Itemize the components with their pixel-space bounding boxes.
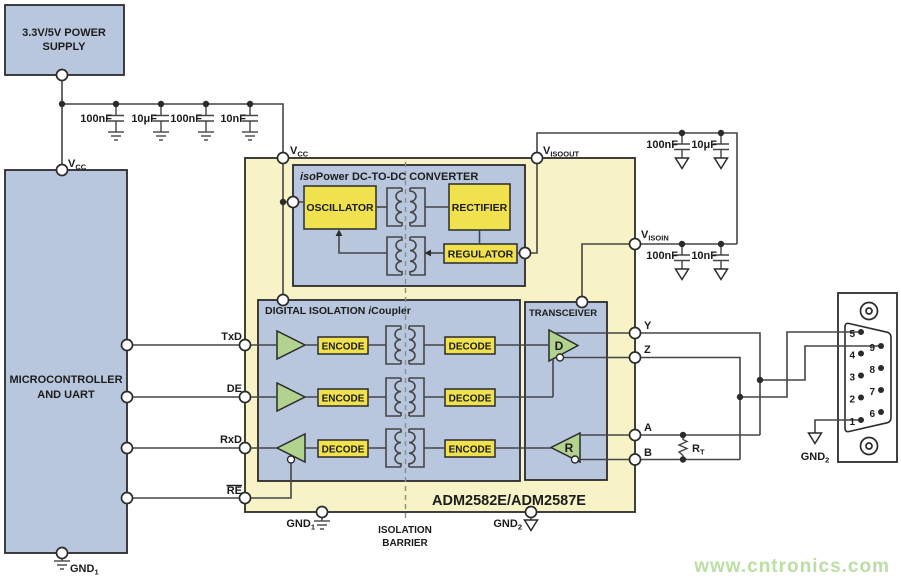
pin3-label: 3 xyxy=(849,373,855,384)
db9-screw-top-center xyxy=(866,308,872,314)
row1-right-label: DECODE xyxy=(449,342,492,353)
cap-label-100nf-1: 100nF xyxy=(80,113,112,125)
circuit-diagram: 3.3V/5V POWER SUPPLY MICROCONTROLLER AND… xyxy=(0,0,901,583)
terminal-chip-a xyxy=(630,430,641,441)
power-supply-box xyxy=(5,5,124,75)
driver-z-bubble-icon xyxy=(557,354,564,361)
wire-y-external xyxy=(641,333,761,435)
mcu-label-1: MICROCONTROLLER xyxy=(9,374,122,386)
digital-isolation-title: DIGITAL ISOLATION iCoupler xyxy=(265,305,411,317)
db9-connector xyxy=(838,293,897,462)
z-label: Z xyxy=(644,344,651,356)
terminal-mcu-txd xyxy=(122,340,133,351)
de-label: DE xyxy=(227,383,242,395)
terminal-isolation-vcc xyxy=(278,295,289,306)
terminal-mcu-gnd xyxy=(57,548,68,559)
row2-right-label: DECODE xyxy=(449,394,492,405)
row2-left-label: ENCODE xyxy=(322,394,365,405)
transceiver-title: TRANSCEIVER xyxy=(529,308,597,319)
row3-right-label: ENCODE xyxy=(449,445,492,456)
part-number-label: ADM2582E/ADM2587E xyxy=(432,493,586,509)
gnd1-mcu-symbol xyxy=(54,559,70,570)
visoout-label: VISOOUT xyxy=(543,145,580,159)
gnd1-chip-symbol xyxy=(314,518,330,530)
mcu-label-2: AND UART xyxy=(37,389,95,401)
wire-z-external xyxy=(641,358,741,460)
pin4-label: 4 xyxy=(849,351,855,362)
terminal-chip-gnd1 xyxy=(317,507,328,518)
y-label: Y xyxy=(644,320,652,332)
resistor-zigzag-icon xyxy=(679,435,687,460)
pin5-label: 5 xyxy=(849,329,855,340)
rt-label: RT xyxy=(692,443,705,457)
gnd2-connector-symbol xyxy=(809,433,822,444)
cap-label-100nf-3: 100nF xyxy=(646,139,678,151)
rxd-label: RxD xyxy=(220,434,242,446)
terminal-mcu-re xyxy=(122,493,133,504)
terminal-psu-out xyxy=(57,70,68,81)
watermark: www.cntronics.com xyxy=(693,556,890,577)
power-supply-label-2: SUPPLY xyxy=(42,41,86,53)
terminal-oscillator-vcc xyxy=(288,197,299,208)
terminal-mcu-rxd xyxy=(122,443,133,454)
schematic-page: 3.3V/5V POWER SUPPLY MICROCONTROLLER AND… xyxy=(0,0,901,583)
terminal-mcu-de xyxy=(122,392,133,403)
txd-label: TxD xyxy=(221,331,242,343)
cap-label-10uf-1: 10μF xyxy=(131,113,157,125)
vcc-label-left: VCC xyxy=(68,158,87,172)
oscillator-label: OSCILLATOR xyxy=(306,202,374,214)
cap-label-10nf-1: 10nF xyxy=(220,113,246,125)
vcc-label-chip: VCC xyxy=(290,145,309,159)
terminal-chip-vcc xyxy=(278,153,289,164)
gnd2-chip-symbol xyxy=(525,518,538,531)
rxd-buffer-enable-bubble-icon xyxy=(288,456,295,463)
terminal-chip-y xyxy=(630,328,641,339)
dcdc-title: isoPower DC-TO-DC CONVERTER xyxy=(300,171,478,183)
row3-left-label: DECODE xyxy=(322,445,365,456)
cap-label-100nf-4: 100nF xyxy=(646,250,678,262)
pin7-label: 7 xyxy=(869,387,875,398)
gnd2-connector-label: GND2 xyxy=(801,451,830,465)
pin1-label: 1 xyxy=(849,417,855,428)
re-label: RE xyxy=(227,485,242,497)
gnd2-chip-label: GND2 xyxy=(493,518,522,532)
isolation-barrier-label-1: ISOLATION xyxy=(378,525,432,536)
mcu-box xyxy=(5,170,127,553)
db9-screw-bottom-center xyxy=(866,443,872,449)
rectifier-label: RECTIFIER xyxy=(452,202,508,214)
gnd1-mcu-label: GND1 xyxy=(70,563,99,577)
b-label: B xyxy=(644,447,652,459)
cap-label-100nf-2: 100nF xyxy=(170,113,202,125)
power-supply-label-1: 3.3V/5V POWER xyxy=(22,27,106,39)
pin6-label: 6 xyxy=(869,409,875,420)
terminal-chip-b xyxy=(630,454,641,465)
terminal-mcu-vcc xyxy=(57,165,68,176)
gnd1-chip-label: GND1 xyxy=(286,518,315,532)
receiver-label: R xyxy=(565,441,574,455)
isolation-barrier-label-2: BARRIER xyxy=(382,538,428,549)
row1-left-label: ENCODE xyxy=(322,342,365,353)
terminal-chip-z xyxy=(630,352,641,363)
a-label: A xyxy=(644,422,652,434)
terminal-chip-visoout xyxy=(532,153,543,164)
pin8-label: 8 xyxy=(869,365,875,376)
regulator-label: REGULATOR xyxy=(448,249,514,261)
terminal-chip-visoin xyxy=(630,239,641,250)
cap-label-10uf-2: 10μF xyxy=(691,139,717,151)
cap-label-10nf-2: 10nF xyxy=(691,250,717,262)
receiver-b-bubble-icon xyxy=(572,456,579,463)
pin2-label: 2 xyxy=(849,395,855,406)
terminal-regulator-out xyxy=(520,248,531,259)
terminal-transceiver-visoin xyxy=(577,297,588,308)
termination-resistor-rt xyxy=(679,435,687,460)
visoin-label: VISOIN xyxy=(641,229,669,243)
driver-label: D xyxy=(555,339,564,353)
pin9-label: 9 xyxy=(869,343,875,354)
